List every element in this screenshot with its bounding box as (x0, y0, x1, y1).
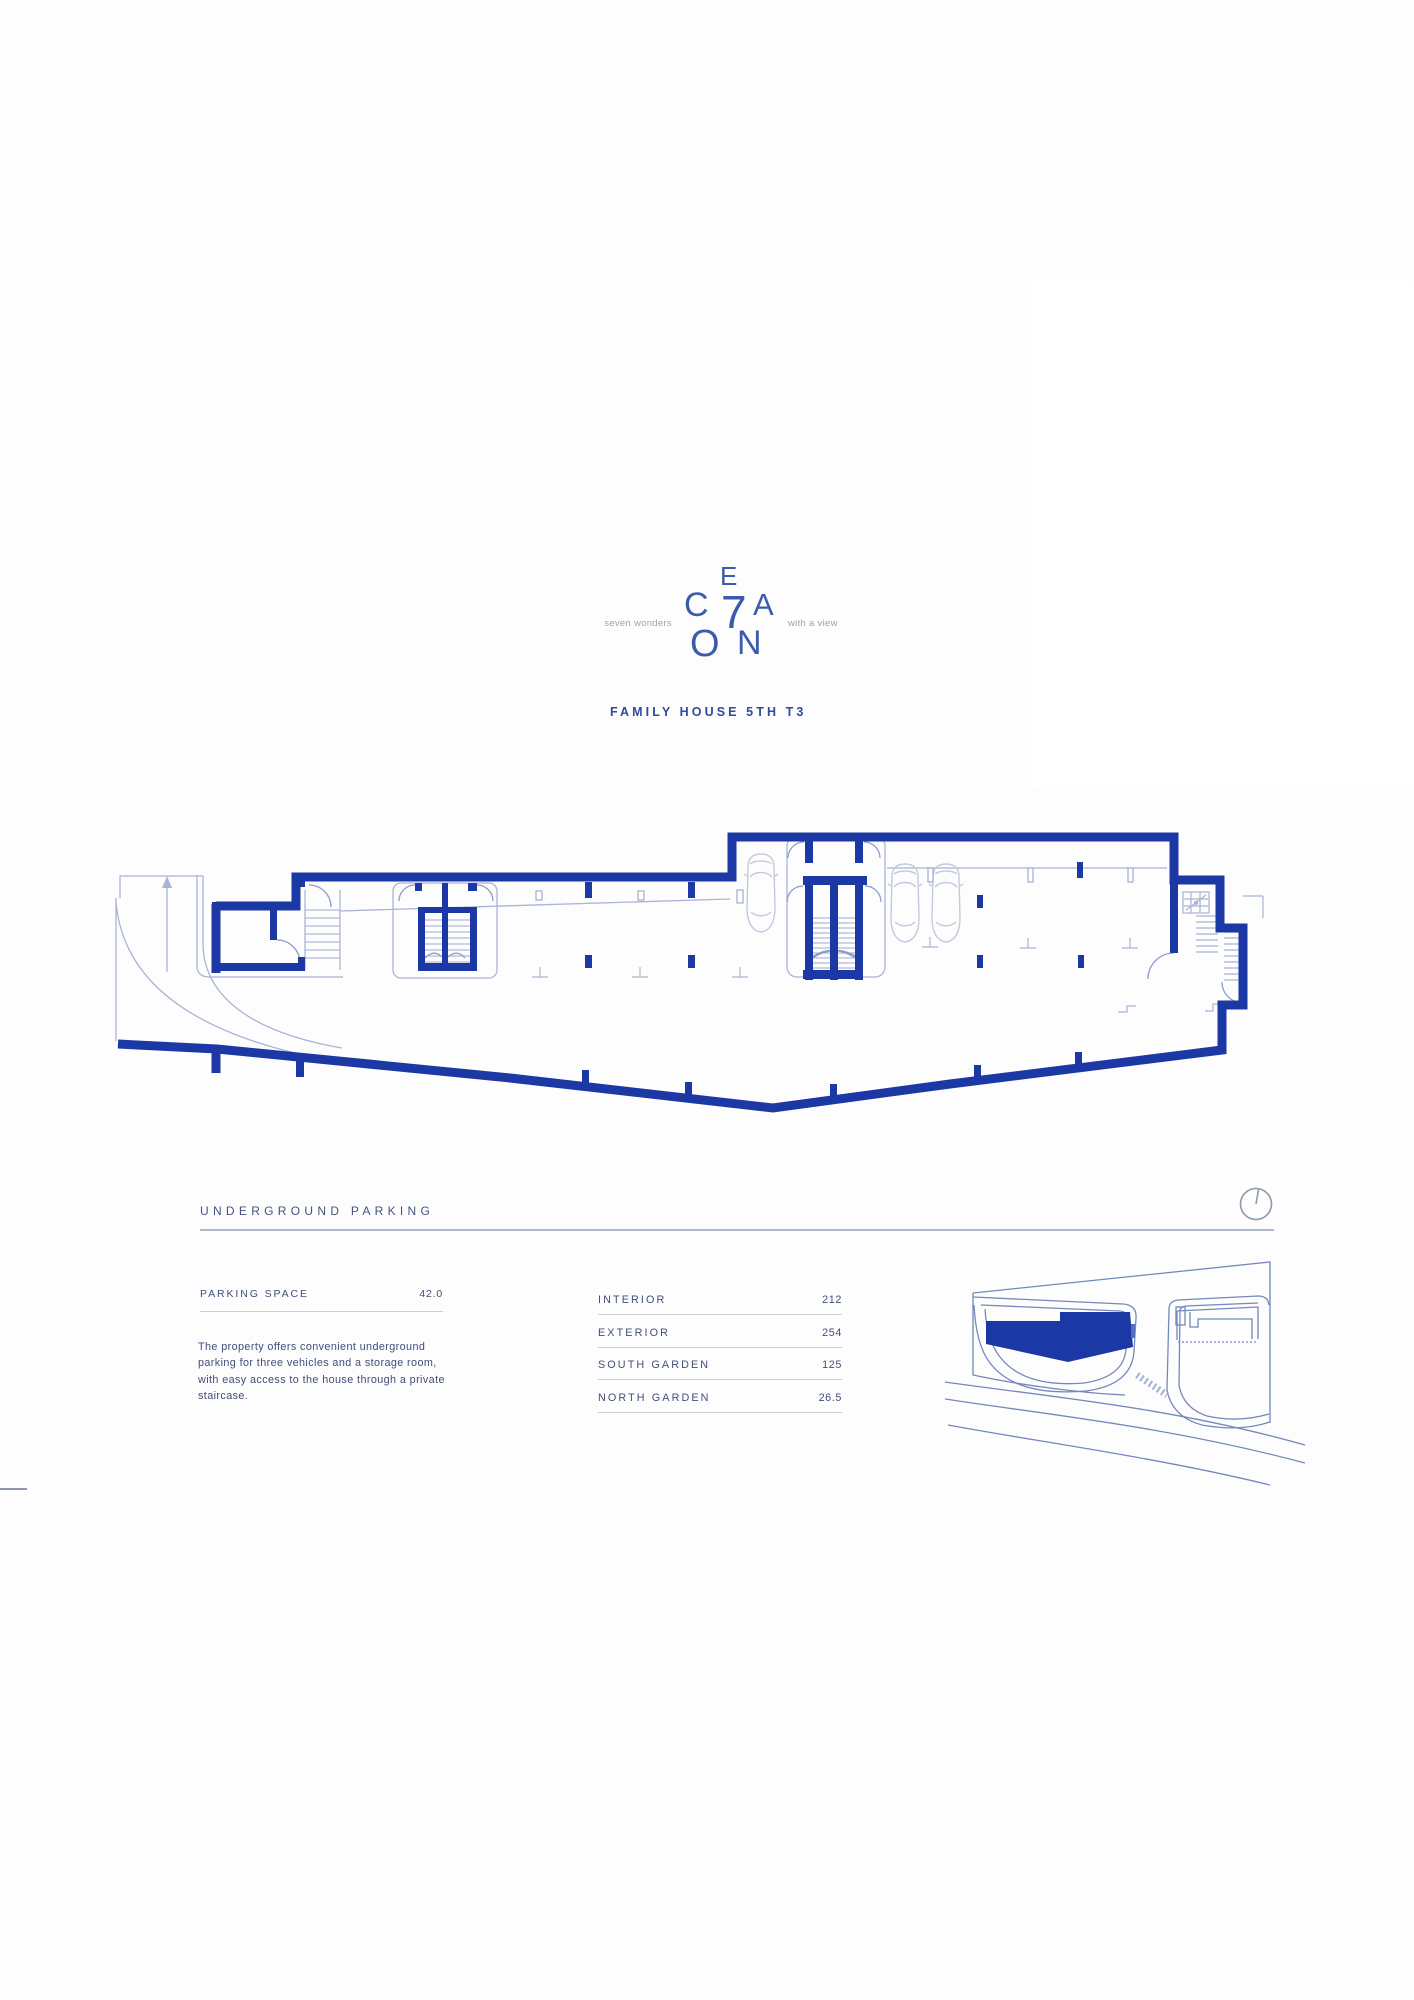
parking-space-value: 42.0 (419, 1288, 443, 1300)
logo-letter-n: N (737, 626, 762, 660)
area-label: INTERIOR (598, 1294, 666, 1306)
area-label: NORTH GARDEN (598, 1392, 711, 1404)
logo-letter-a: A (753, 589, 774, 620)
area-table: INTERIOR 212 EXTERIOR 254 SOUTH GARDEN 1… (598, 1289, 842, 1419)
logo-letter-o: O (690, 625, 720, 663)
table-row: EXTERIOR 254 (598, 1322, 842, 1355)
row-rule (598, 1314, 842, 1315)
area-value: 125 (822, 1359, 842, 1371)
table-row: SOUTH GARDEN 125 (598, 1354, 842, 1387)
area-value: 254 (822, 1327, 842, 1339)
outer-walls (118, 837, 1243, 1108)
parking-space-label: PARKING SPACE (200, 1288, 309, 1300)
parking-space-rule (200, 1311, 443, 1312)
floor-plan-drawing (100, 820, 1270, 1120)
crop-mark (0, 1488, 27, 1490)
logo-letter-c: C (684, 588, 709, 622)
stair-treads (305, 890, 855, 970)
area-value: 212 (822, 1294, 842, 1306)
north-indicator-icon (1234, 1182, 1278, 1226)
section-heading: UNDERGROUND PARKING (200, 1204, 434, 1218)
parking-space-row: PARKING SPACE 42.0 (200, 1288, 443, 1312)
area-value: 26.5 (819, 1392, 842, 1404)
ramp-arrow-icon (162, 876, 172, 888)
heading-rule (200, 1229, 1274, 1231)
page-title: FAMILY HOUSE 5TH T3 (610, 705, 840, 719)
highlighted-unit-footprint (986, 1312, 1133, 1362)
site-location-minimap (940, 1245, 1310, 1490)
area-label: EXTERIOR (598, 1327, 670, 1339)
row-rule (598, 1379, 842, 1380)
table-row: NORTH GARDEN 26.5 (598, 1387, 842, 1420)
tagline-right: with a view (788, 618, 838, 629)
row-rule (598, 1347, 842, 1348)
ramp-hatch (1137, 1375, 1167, 1395)
unit-tab (1131, 1324, 1135, 1338)
brochure-page: { "brand": { "letters": ["C", "E", "7", … (0, 0, 1414, 2000)
area-label: SOUTH GARDEN (598, 1359, 710, 1371)
tagline-left: seven wonders (560, 618, 672, 629)
scan-highlight (1030, 278, 1414, 790)
parked-car-icons (744, 854, 963, 942)
property-description: The property offers convenient undergrou… (198, 1339, 456, 1404)
table-row: INTERIOR 212 (598, 1289, 842, 1322)
row-rule (598, 1412, 842, 1413)
